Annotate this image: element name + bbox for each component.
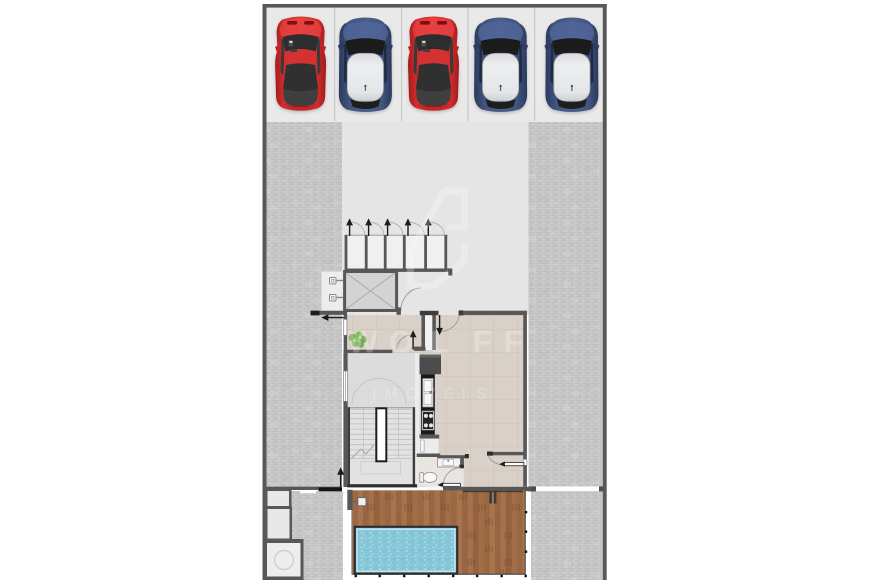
svg-text:M: M <box>385 386 398 403</box>
svg-text:L: L <box>431 324 450 360</box>
svg-text:O: O <box>389 324 414 360</box>
svg-text:S: S <box>477 386 487 403</box>
svg-text:F: F <box>504 324 523 360</box>
svg-text:E: E <box>444 386 454 403</box>
svg-text:V: V <box>425 386 436 403</box>
svg-text:Ó: Ó <box>406 386 418 403</box>
svg-text:W: W <box>348 324 378 360</box>
svg-text:I: I <box>372 386 376 403</box>
svg-text:I: I <box>462 386 466 403</box>
svg-text:F: F <box>473 324 492 360</box>
